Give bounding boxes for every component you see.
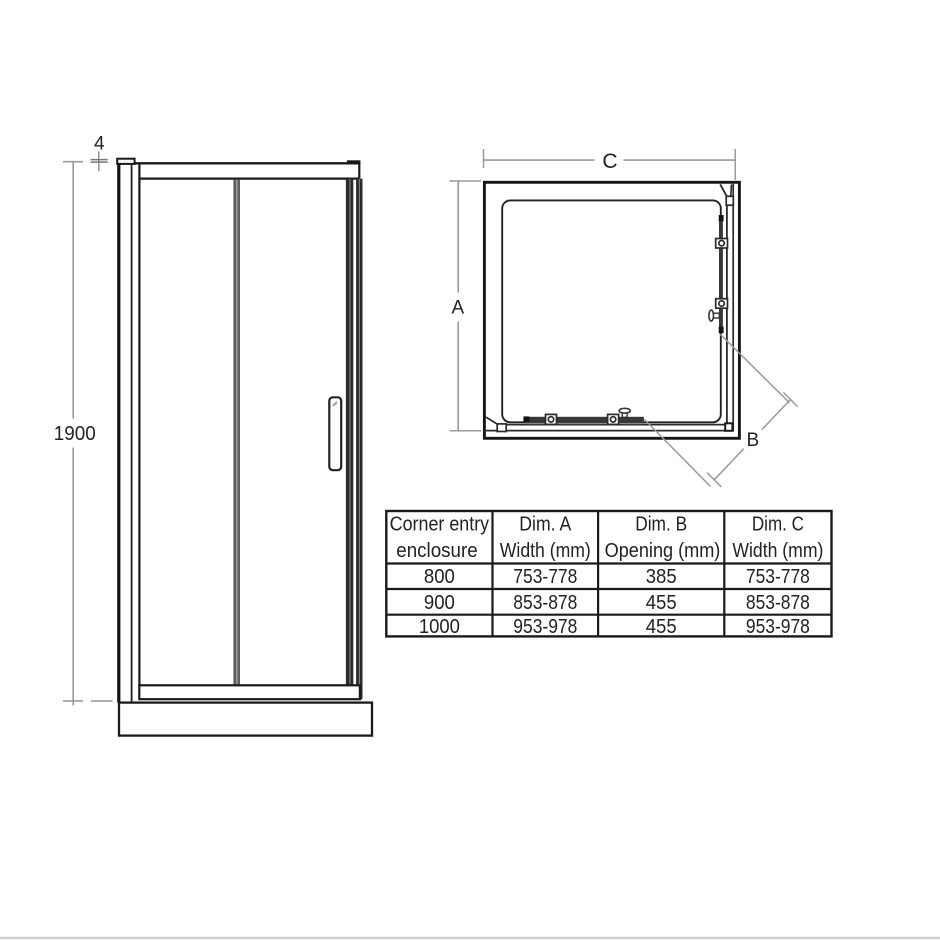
svg-text:Width (mm): Width (mm) [732,540,823,562]
svg-text:853-878: 853-878 [513,592,577,614]
svg-text:1000: 1000 [419,616,460,638]
svg-text:800: 800 [424,566,455,588]
svg-text:4: 4 [94,134,105,155]
svg-text:C: C [602,150,617,173]
svg-text:Dim. C: Dim. C [752,514,804,536]
svg-text:753-778: 753-778 [513,566,577,588]
svg-text:enclosure: enclosure [396,540,477,562]
svg-text:Width (mm): Width (mm) [500,540,591,562]
svg-text:B: B [747,430,760,451]
svg-text:753-778: 753-778 [746,566,810,588]
svg-text:953-978: 953-978 [746,616,810,638]
svg-text:Opening (mm): Opening (mm) [605,540,721,562]
svg-text:385: 385 [646,566,677,588]
svg-text:900: 900 [424,592,455,614]
svg-text:A: A [452,298,465,319]
svg-text:Corner entry: Corner entry [390,514,490,536]
svg-text:1900: 1900 [54,422,96,445]
svg-text:455: 455 [646,592,677,614]
svg-text:953-978: 953-978 [513,616,577,638]
svg-text:455: 455 [646,616,677,638]
svg-text:Dim. A: Dim. A [519,514,571,536]
svg-text:853-878: 853-878 [746,592,810,614]
svg-text:Dim. B: Dim. B [635,514,687,536]
